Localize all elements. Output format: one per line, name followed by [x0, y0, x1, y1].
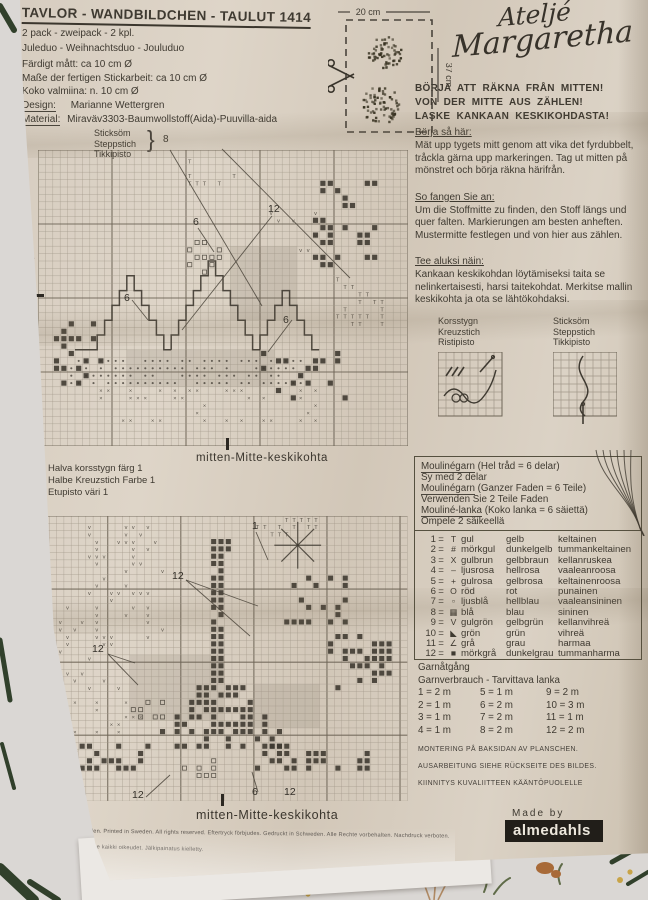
- pointer-lines-overlay: [0, 0, 648, 900]
- pattern-sheet: TAVLOR - WANDBILDCHEN - TAULUT 1414 2 pa…: [0, 0, 648, 900]
- photo-scene: TAVLOR - WANDBILDCHEN - TAULUT 1414 2 pa…: [0, 0, 648, 900]
